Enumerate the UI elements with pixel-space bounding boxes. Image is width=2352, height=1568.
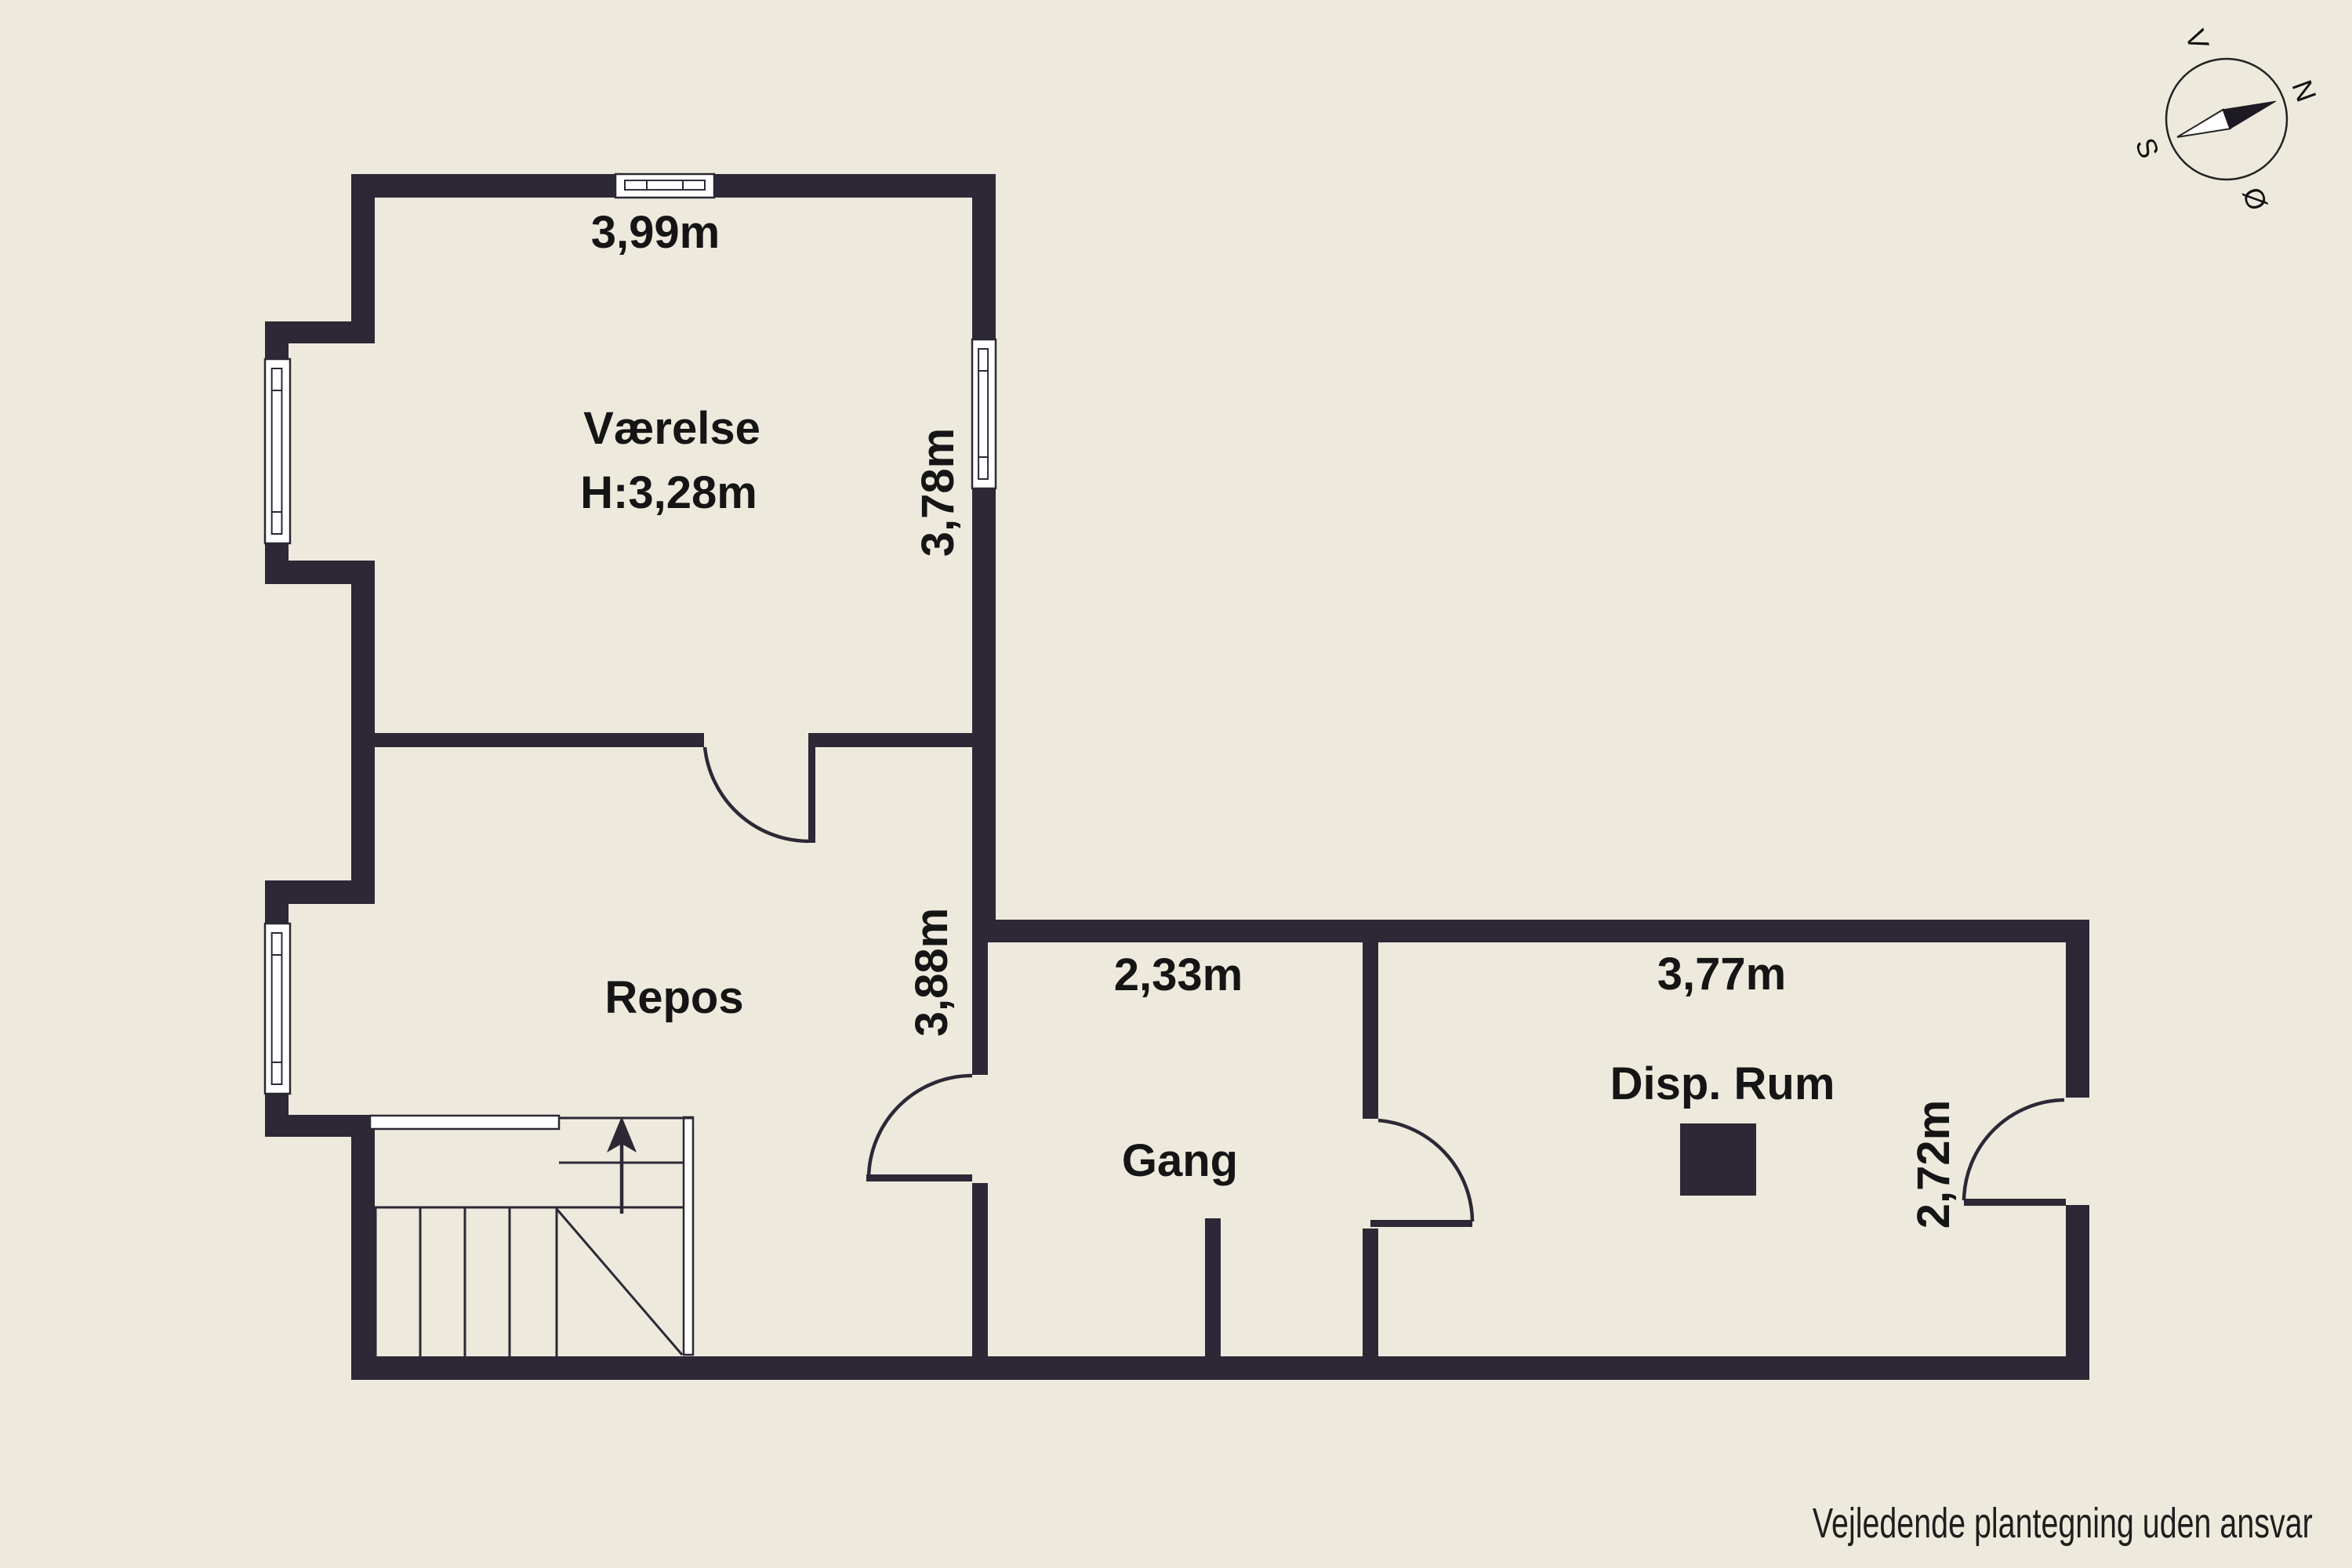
wall-segment	[265, 561, 375, 584]
wall-segment	[2066, 920, 2089, 1098]
shaft-square	[1680, 1123, 1756, 1196]
wall-segment	[265, 880, 375, 904]
wall-segment	[265, 1094, 289, 1115]
wall-segment	[351, 1137, 375, 1380]
floor-plan: 3,99mVærelseH:3,28m3,78mRepos3,88m2,33mG…	[0, 0, 2352, 1568]
floor-plan-drawing: 3,99mVærelseH:3,28m3,78mRepos3,88m2,33mG…	[0, 0, 2352, 1568]
wall-segment	[972, 174, 996, 339]
wall-segment	[351, 1356, 2089, 1380]
wall-segment	[265, 543, 289, 561]
dim-disp-377: 3,77m	[1657, 949, 1786, 1000]
stair-landing-band	[684, 1117, 693, 1355]
wall-segment	[2066, 1205, 2089, 1380]
room-repos: Repos	[604, 972, 743, 1023]
window-symbol	[615, 174, 714, 198]
room-disp-rum: Disp. Rum	[1610, 1058, 1835, 1109]
wall-segment	[1205, 1218, 1221, 1356]
wall-segment	[1363, 1229, 1378, 1356]
wall-segment	[375, 733, 704, 747]
door-leaf	[808, 733, 815, 843]
window-symbol	[265, 359, 290, 543]
wall-segment	[265, 343, 289, 359]
door-leaf	[866, 1174, 972, 1181]
wall-segment	[351, 174, 375, 321]
dim-top-399: 3,99m	[591, 207, 720, 258]
disclaimer-text: Vejledende plantegning uden ansvar	[1813, 1499, 2313, 1548]
wall-segment	[988, 920, 2089, 942]
wall-segment	[972, 1183, 988, 1356]
wall-segment	[814, 733, 972, 747]
room-vaerelse: Værelse	[583, 403, 760, 454]
wall-segment	[265, 904, 289, 924]
stair-landing-band	[370, 1116, 559, 1129]
wall-segment	[265, 321, 375, 343]
wall-segment	[972, 488, 996, 920]
room-gang: Gang	[1122, 1135, 1238, 1186]
window-symbol	[265, 924, 290, 1094]
door-leaf	[1964, 1199, 2066, 1206]
dim-gang-233: 2,33m	[1114, 949, 1243, 1000]
wall-segment	[1363, 942, 1378, 1119]
door-leaf	[1370, 1220, 1472, 1227]
dim-right-378: 3,78m	[913, 428, 964, 557]
wall-segment	[972, 920, 988, 1075]
wall-segment	[351, 584, 375, 880]
wall-segment	[265, 1115, 375, 1137]
dim-right-388: 3,88m	[906, 908, 957, 1036]
dim-right-272: 2,72m	[1908, 1100, 1959, 1229]
ceiling-height: H:3,28m	[580, 467, 757, 518]
window-symbol	[972, 339, 996, 488]
